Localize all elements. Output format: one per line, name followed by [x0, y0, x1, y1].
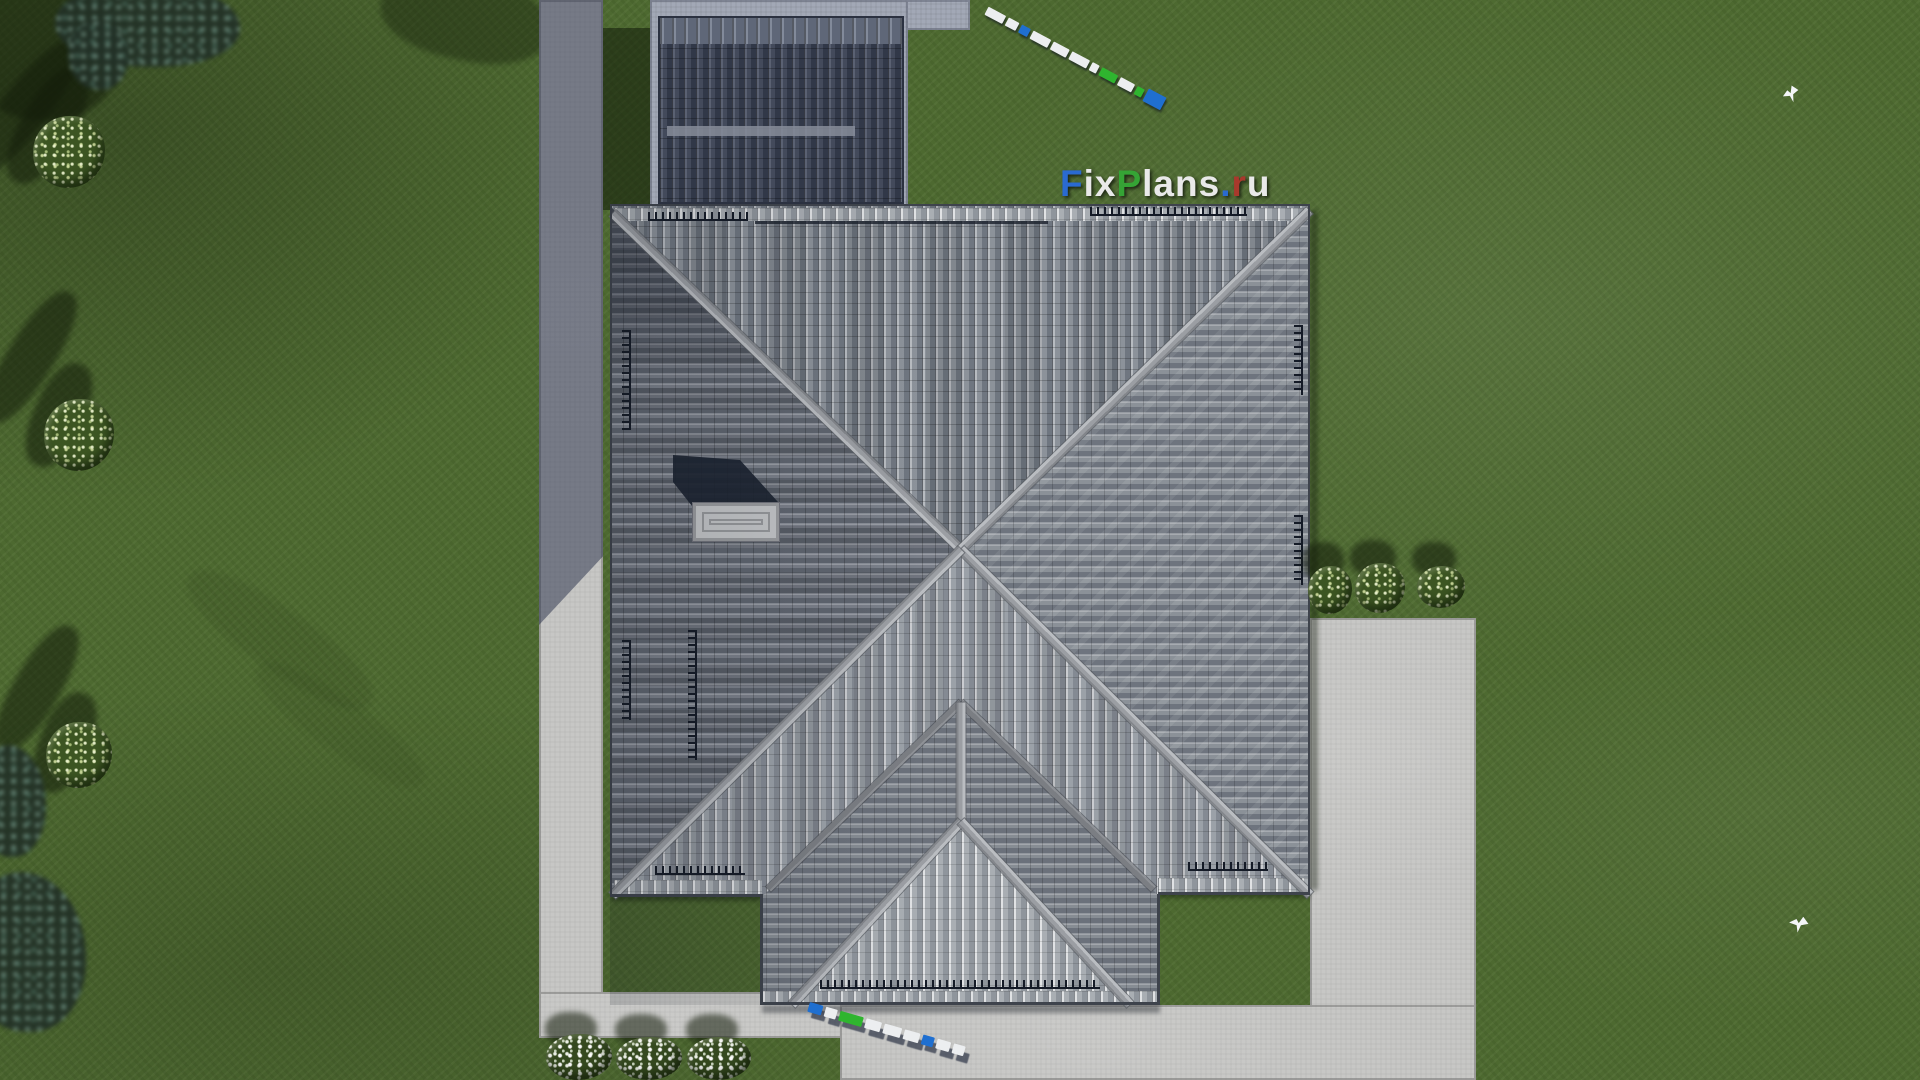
- snow-guard: [1294, 325, 1303, 395]
- bush: [44, 399, 114, 471]
- snow-guard: [1090, 207, 1247, 216]
- eave-fascia: [760, 894, 763, 1005]
- flower-bush: [546, 1034, 612, 1080]
- tree-canopy-edge: [0, 872, 86, 1032]
- scale-segment-white: [1117, 77, 1135, 92]
- garage-roof: [660, 18, 902, 202]
- tree-shadow: [373, 0, 557, 77]
- scale-segment-green: [1134, 86, 1145, 98]
- garage-roof-gutter-line: [667, 126, 855, 136]
- garage-roof-ridge-caps: [660, 18, 902, 44]
- scale-segment-blue: [1018, 24, 1031, 37]
- eave-fascia: [610, 894, 762, 897]
- watermark-letter: u: [1247, 163, 1271, 204]
- watermark-letter: F: [1060, 163, 1084, 204]
- bird-icon: [1780, 84, 1802, 105]
- snow-guard: [1294, 515, 1303, 585]
- watermark-fixplans: FixPlans.ru: [1060, 163, 1271, 205]
- bird-icon: [1787, 914, 1811, 934]
- aerial-house-render: FixPlans.ru: [0, 0, 1920, 1080]
- scale-segment-green: [1099, 67, 1119, 83]
- watermark-letter: ix: [1084, 163, 1117, 204]
- main-hip-roof: [610, 204, 1310, 1005]
- snow-guard: [648, 212, 748, 221]
- flower-bush: [687, 1037, 751, 1080]
- shadowed-grass-strip: [603, 28, 650, 210]
- gutter-line: [755, 221, 1048, 224]
- scale-segment-white: [1005, 17, 1020, 31]
- scale-segment-blue: [1142, 89, 1166, 111]
- wing-ridge: [957, 703, 966, 823]
- bush: [1355, 563, 1405, 613]
- watermark-letter: r: [1231, 163, 1246, 204]
- house-shadow-on-walkway: [539, 0, 603, 625]
- eave-fascia: [610, 206, 612, 896]
- snow-guard: [655, 866, 745, 875]
- snow-guard: [820, 980, 1100, 989]
- bush: [33, 116, 105, 188]
- snow-guard: [622, 330, 631, 430]
- eave-tile-row: [614, 880, 762, 894]
- watermark-letter: .: [1220, 163, 1231, 204]
- watermark-letter: P: [1116, 163, 1142, 204]
- scale-bar-top: [983, 4, 1169, 112]
- flower-bush: [616, 1037, 682, 1080]
- scale-segment-white: [985, 6, 1007, 23]
- bush: [1308, 566, 1352, 614]
- bush: [1417, 566, 1465, 608]
- scale-segment-white: [1030, 30, 1052, 47]
- scale-segment-white: [1050, 41, 1070, 57]
- scale-segment-white: [1068, 51, 1090, 68]
- eave-fascia: [1158, 892, 1310, 895]
- watermark-letter: lans: [1142, 163, 1220, 204]
- chimney-cap: [693, 503, 779, 541]
- eave-fascia: [1157, 894, 1160, 1005]
- snow-guard: [1188, 862, 1268, 871]
- eave-tile-row: [1158, 878, 1308, 892]
- tree-canopy: [68, 20, 128, 90]
- snow-guard: [688, 630, 697, 760]
- snow-guard: [622, 640, 631, 720]
- scale-segment-white: [1089, 62, 1100, 74]
- bush: [46, 722, 112, 788]
